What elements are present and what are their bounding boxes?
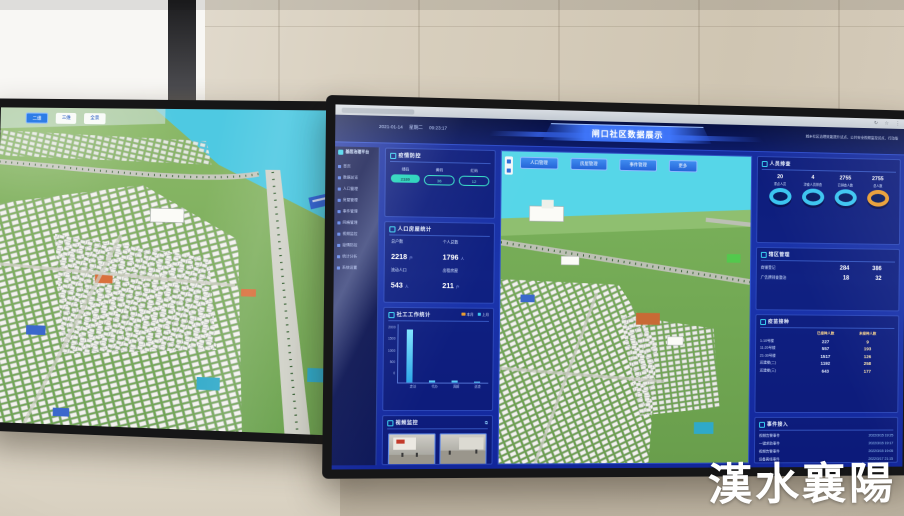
ring-gauge — [867, 190, 889, 207]
left-monitor-screen: 二维 三维 全景 — [0, 107, 353, 436]
stat-value: 543 — [391, 282, 403, 289]
header-slogan: 城乡社区治理效能提升试点、公共安全视频监控试点、行动版 — [806, 134, 899, 141]
event-time: 2022/3/15 19:25 — [869, 433, 894, 438]
chart-bar — [452, 381, 458, 383]
map-button-more[interactable]: 更多 — [669, 160, 697, 173]
list-item[interactable]: 一键求助事件2022/3/15 19:17 — [759, 441, 893, 446]
center-map-area: 人口管理 房屋管理 事件管理 更多 — [498, 150, 753, 464]
panel-title: 疫情防控 — [398, 152, 421, 160]
health-code-value[interactable]: 36 — [424, 175, 455, 186]
camera-scene-figure — [416, 453, 418, 457]
gauge-value: 20 — [777, 174, 783, 180]
stat-unit: 户 — [409, 256, 413, 260]
ring-gauge — [802, 188, 824, 205]
vaccine-table-header: 已接种人数 未接种人数 — [760, 331, 894, 337]
panel-icon — [389, 226, 395, 232]
chart-legend: 本月 上月 — [462, 312, 489, 317]
community-3d-map-center — [499, 151, 752, 463]
panel-icon — [388, 311, 394, 317]
camera-feed-1[interactable] — [388, 433, 436, 465]
map-button-housing[interactable]: 房屋管理 — [570, 158, 608, 171]
y-tick: 0 — [393, 371, 395, 375]
cell-value: 557 — [804, 346, 846, 351]
vaccine-col-spacer — [760, 331, 805, 336]
legend-label: 本月 — [466, 312, 473, 317]
panel-icon — [761, 251, 767, 257]
cell-value: 1517 — [804, 353, 846, 358]
sidebar-glare — [332, 146, 379, 465]
y-tick: 1500 — [388, 337, 395, 341]
map-chip-2d[interactable]: 二维 — [26, 113, 49, 124]
camera-scene-ground — [440, 450, 485, 464]
camera-scene-figure — [449, 451, 451, 455]
x-tick: 代办 — [431, 384, 438, 389]
health-code-label: 绿码 — [402, 167, 409, 172]
ring-gauge — [769, 188, 791, 205]
ceiling-shadow — [0, 0, 904, 10]
stat-value: 1796 — [443, 255, 459, 262]
premises-row: 商铺登记 284 386 — [761, 265, 895, 273]
x-tick: 巡查 — [474, 384, 481, 389]
gauge-row: 20重点人员 4涉疫人员排查 2755已排查人数 2755总人数 — [761, 173, 896, 208]
datetime-display: 2021-01-14 星期二 09:23:17 — [379, 124, 447, 132]
panel-title: 人员排查 — [770, 160, 791, 167]
y-tick: 1000 — [388, 348, 395, 352]
panel-header: 辖区管理 — [761, 251, 895, 263]
table-row[interactable]: 11-20号楼557193 — [760, 346, 894, 352]
cell-value: 9 — [847, 339, 889, 344]
dashboard-body: 基层治理平台 首页 数据总览 人口管理 房屋管理 事件管理 网格管理 视频监控 … — [332, 142, 904, 469]
stat-label: 流动人口 — [391, 268, 436, 274]
gauge-item: 4涉疫人员排查 — [796, 175, 829, 206]
locate-icon — [507, 168, 511, 172]
panel-header: 视频监控 ⧉ — [387, 419, 488, 429]
time-text: 09:23:17 — [429, 125, 447, 132]
population-stat-grid: 总户数2218户 个人总数1796人 流动人口543人 出租房屋211户 — [389, 239, 490, 295]
premises-label: 商铺登记 — [761, 265, 817, 271]
cell-value: 177 — [846, 368, 888, 373]
wall-seam-line — [200, 26, 904, 27]
row-label: 还建楼(三) — [760, 368, 805, 373]
legend-item: 本月 — [462, 312, 474, 317]
panel-icon — [390, 152, 396, 158]
x-tick: 走访 — [410, 384, 417, 389]
camera-scene-building — [459, 437, 484, 449]
event-time: 2022/3/15 19:17 — [868, 441, 893, 446]
camera-scene-figure — [475, 450, 477, 454]
cell-value: 126 — [846, 354, 888, 359]
map-chip-row: 二维 三维 全景 — [26, 113, 106, 125]
gauge-value: 2755 — [872, 176, 884, 182]
panel-title: 辖区管理 — [769, 251, 790, 258]
map-button-events[interactable]: 事件管理 — [619, 159, 656, 172]
stat-label: 个人总数 — [443, 240, 488, 246]
health-code-label: 黄码 — [436, 168, 443, 173]
stat-label: 总户数 — [391, 240, 436, 246]
panel-title: 疫苗接种 — [768, 318, 789, 325]
panel-video: 视频监控 ⧉ — [382, 415, 493, 465]
premises-row: 广告牌排查整治 18 32 — [761, 275, 895, 282]
panel-header: 疫苗接种 — [760, 318, 894, 329]
table-row[interactable]: 还建楼(二)1192258 — [760, 361, 894, 366]
weekday-text: 星期二 — [409, 125, 423, 131]
cell-value: 258 — [846, 361, 888, 366]
dashboard-title-plate: 闸口社区数据展示 — [542, 123, 711, 144]
cell-value: 193 — [847, 346, 889, 351]
event-label: 视频告警事件 — [759, 434, 780, 439]
menu-dots-icon[interactable]: ⋮ — [895, 121, 900, 126]
health-code-row: 绿码 2180 黄码 36 红码 12 — [390, 165, 491, 188]
legend-label: 上月 — [482, 312, 489, 317]
camera-feed-2[interactable] — [439, 433, 486, 465]
community-3d-map-left — [0, 107, 353, 436]
map-chip-3d[interactable]: 三维 — [56, 113, 77, 124]
row-label: 还建楼(二) — [760, 361, 805, 366]
health-code-item: 红码 12 — [459, 169, 490, 187]
gauge-value: 4 — [811, 175, 814, 181]
table-row[interactable]: 21-30号楼1517126 — [760, 353, 894, 359]
stat-unit: 户 — [456, 285, 460, 289]
ring-gauge — [834, 189, 856, 206]
premises-value: 32 — [849, 276, 881, 282]
bar-chart: 2000 1500 1000 500 0 — [388, 324, 489, 383]
layers-icon — [507, 159, 511, 163]
stat-item: 流动人口543人 — [391, 268, 437, 293]
premises-value: 284 — [817, 265, 850, 271]
gauge-item: 2755总人数 — [861, 176, 894, 207]
left-monitor: 二维 三维 全景 — [0, 98, 362, 445]
camera-grid — [387, 432, 488, 465]
y-tick: 500 — [390, 360, 396, 364]
panel-header: 人口房屋统计 — [389, 225, 490, 237]
panel-health: 疫情防控 绿码 2180 黄码 36 — [384, 148, 496, 219]
panel-vaccine: 疫苗接种 已接种人数 未接种人数 1-10号楼2279 11-20号楼55719… — [754, 314, 899, 413]
gauge-value: 2755 — [840, 175, 852, 181]
health-code-value[interactable]: 12 — [459, 176, 490, 187]
table-row[interactable]: 1-10号楼2279 — [760, 338, 894, 344]
cell-value: 643 — [804, 368, 846, 373]
camera-scene-figure — [401, 453, 403, 457]
chart-x-axis: 走访 代办 调解 巡查 — [402, 383, 488, 388]
photo-watermark: 漢水襄陽 — [708, 447, 897, 513]
stat-label: 出租房屋 — [442, 269, 487, 275]
health-code-item: 绿码 2180 — [391, 167, 420, 185]
row-label: 11-20号楼 — [760, 346, 805, 351]
stat-item: 出租房屋211户 — [442, 269, 487, 294]
map-chip-pano[interactable]: 全景 — [84, 113, 105, 124]
chart-bar — [429, 380, 435, 382]
legend-item: 上月 — [477, 312, 489, 317]
cell-value: 1192 — [804, 361, 846, 366]
map-button-population[interactable]: 人口管理 — [520, 157, 558, 170]
chart-plot-area — [397, 324, 489, 383]
page-title: 闸口社区数据展示 — [592, 128, 664, 141]
panel-icon — [759, 421, 765, 427]
panel-icon — [760, 319, 766, 325]
expand-icon[interactable]: ⧉ — [485, 420, 488, 425]
panel-screening: 人员排查 20重点人员 4涉疫人员排查 2755已排查人数 2755总人数 — [756, 156, 901, 245]
event-label: 一键求助事件 — [759, 442, 780, 447]
sidebar-nav: 基层治理平台 首页 数据总览 人口管理 房屋管理 事件管理 网格管理 视频监控 … — [332, 146, 380, 465]
star-icon[interactable]: ☆ — [885, 121, 889, 126]
panel-header: 疫情防控 — [390, 152, 491, 164]
legend-swatch — [462, 312, 466, 316]
vaccine-col-header: 已接种人数 — [805, 331, 847, 336]
list-item[interactable]: 视频告警事件2022/3/15 19:25 — [759, 433, 893, 438]
camera-scene-sign — [396, 440, 404, 444]
community-dashboard: ↻ ☆ ⋮ 2021-01-14 星期二 09:23:17 闸口社区数据展示 城… — [332, 104, 904, 469]
row-label: 1-10号楼 — [760, 338, 805, 343]
stat-value: 2218 — [391, 254, 407, 261]
gauge-label: 总人数 — [873, 183, 882, 188]
stat-value: 211 — [442, 283, 454, 290]
panel-header: 人员排查 — [762, 160, 896, 173]
health-code-item: 黄码 36 — [424, 168, 455, 186]
left-panel-column: 疫情防控 绿码 2180 黄码 36 — [382, 148, 496, 466]
panel-icon — [387, 420, 393, 426]
panel-title: 人口房屋统计 — [398, 225, 432, 233]
gauge-label: 涉疫人员排查 — [804, 182, 822, 187]
gauge-label: 重点人员 — [774, 181, 786, 186]
health-code-value[interactable]: 2180 — [391, 174, 420, 183]
panel-premises: 辖区管理 商铺登记 284 386 广告牌排查整治 18 32 — [755, 247, 899, 312]
premises-value: 18 — [817, 275, 850, 281]
address-bar[interactable] — [342, 107, 415, 114]
cell-value: 227 — [804, 339, 846, 344]
panel-title: 事件接入 — [767, 421, 788, 428]
panel-work-chart: 社工工作统计 本月 上月 2000 1500 1000 500 — [382, 307, 494, 411]
x-tick: 调解 — [453, 384, 460, 389]
right-monitor-screen: ↻ ☆ ⋮ 2021-01-14 星期二 09:23:17 闸口社区数据展示 城… — [332, 104, 904, 469]
chart-bar — [406, 329, 413, 382]
refresh-icon[interactable]: ↻ — [874, 121, 878, 126]
panel-icon — [762, 161, 768, 167]
right-panel-column: 人员排查 20重点人员 4涉疫人员排查 2755已排查人数 2755总人数 辖区 — [754, 156, 901, 463]
gauge-item: 2755已排查人数 — [829, 175, 862, 206]
stat-item: 个人总数1796人 — [443, 240, 488, 265]
right-monitor: ↻ ☆ ⋮ 2021-01-14 星期二 09:23:17 闸口社区数据展示 城… — [322, 95, 904, 479]
chart-bar — [474, 381, 480, 382]
gauge-item: 20重点人员 — [763, 174, 796, 205]
stat-item: 总户数2218户 — [391, 240, 437, 265]
date-text: 2021-01-14 — [379, 124, 403, 131]
premises-value: 386 — [849, 266, 881, 272]
chart-y-axis: 2000 1500 1000 500 0 — [388, 324, 396, 383]
gauge-label: 已排查人数 — [838, 182, 853, 187]
legend-swatch — [477, 312, 481, 316]
map-toolbar[interactable] — [505, 156, 513, 174]
camera-scene-ground — [389, 455, 434, 465]
table-row[interactable]: 还建楼(三)643177 — [760, 368, 894, 373]
row-label: 21-30号楼 — [760, 353, 805, 358]
stat-unit: 人 — [461, 257, 465, 261]
panel-population: 人口房屋统计 总户数2218户 个人总数1796人 流动人口543人 出租房屋2… — [383, 221, 495, 304]
panel-title: 社工工作统计 — [397, 311, 431, 318]
stat-unit: 人 — [405, 285, 409, 289]
y-tick: 2000 — [388, 325, 395, 329]
health-code-label: 红码 — [470, 169, 477, 174]
vaccine-col-header: 未接种人数 — [847, 332, 889, 337]
panel-header: 事件接入 — [759, 421, 893, 431]
panel-title: 视频监控 — [395, 419, 418, 426]
premises-label: 广告牌排查整治 — [761, 275, 817, 281]
